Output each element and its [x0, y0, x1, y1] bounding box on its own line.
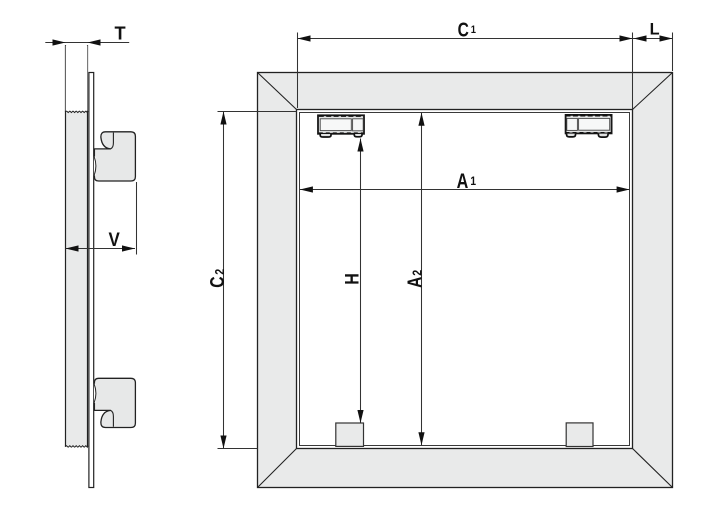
svg-text:2: 2 [409, 269, 424, 275]
svg-text:H: H [341, 273, 363, 285]
svg-text:T: T [114, 23, 125, 43]
svg-text:L: L [650, 21, 660, 39]
svg-text:1: 1 [471, 25, 476, 37]
svg-text:2: 2 [212, 268, 227, 274]
svg-text:C: C [206, 277, 228, 288]
svg-text:V: V [108, 228, 120, 250]
svg-text:A: A [403, 277, 426, 288]
svg-text:C: C [458, 18, 469, 41]
svg-text:A: A [457, 169, 469, 193]
svg-text:1: 1 [470, 175, 476, 188]
